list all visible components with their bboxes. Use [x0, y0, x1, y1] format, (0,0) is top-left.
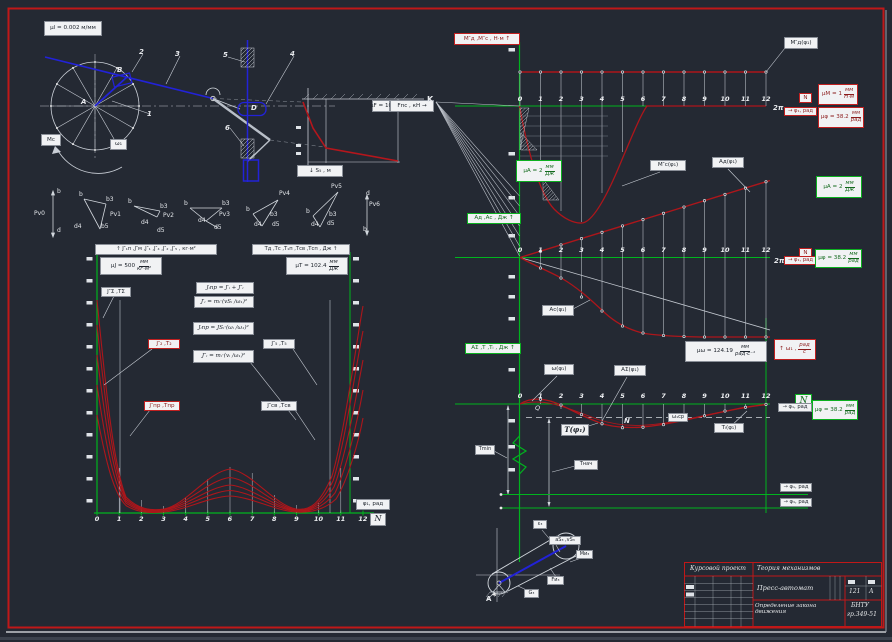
energy-axis-title-right: AΣ ,T ,Tᵢ , Дж ↑: [465, 343, 521, 354]
curve-label-j2: J″₂ ,T₂: [148, 339, 180, 349]
drawing-sheet: μl = 0.002 м/мм 2 3 5 4 1 6 B D А Мс ω₁ …: [0, 0, 892, 642]
mu-phi-bot-den: рад: [845, 411, 855, 417]
ti-curve-label: Tᵢ(φ₁): [714, 423, 744, 433]
mu-omega-den: рад·с⁻¹: [735, 352, 755, 358]
link-number-4: 4: [290, 50, 295, 58]
mu-t-den: Дж: [329, 267, 338, 273]
omega-avg-label: ω₁ср: [668, 413, 688, 422]
tick-label: 2: [556, 392, 566, 400]
omega-axis-box: ↑ ω₁ , радс: [774, 339, 816, 360]
tick-label: 6: [638, 95, 648, 103]
pv5-d5: d5: [327, 221, 335, 227]
moments-two-pi: 2π: [773, 104, 783, 112]
mu-phi-top-value: μφ = 38.2: [821, 114, 849, 120]
tick-label: 9: [291, 515, 301, 523]
mu-phi-mid-den: рад: [848, 259, 858, 265]
tick-label: 6: [638, 392, 648, 400]
tick-label: 10: [720, 392, 730, 400]
force-scale-box: μF = 10: [372, 100, 390, 112]
tick-label: 3: [158, 515, 168, 523]
tick-label: 3: [577, 95, 587, 103]
formula-j-rotational: Jᵢпр = JSᵢ·(ωᵢ /ω₁)²: [193, 322, 254, 335]
scale-length-box: μl = 0.002 м/мм: [44, 21, 102, 36]
point-a-label: А: [81, 98, 86, 106]
point-d-label: D: [251, 104, 257, 112]
mechanism-scheme: [40, 40, 335, 182]
resistance-moment-box: Мс: [41, 134, 61, 146]
tick-label: 3: [577, 246, 587, 254]
left-chart-x-label: φ₁, рад: [356, 499, 390, 510]
omega-chart-ticks: 0123456789101112: [515, 392, 771, 400]
tick-label: 5: [618, 246, 628, 254]
curve-label-jpr: J″пр ,Tпр: [144, 401, 180, 411]
tick-label: 12: [761, 246, 771, 254]
tick-label: 12: [761, 392, 771, 400]
tick-label: 3: [577, 392, 587, 400]
tick-label: 7: [247, 515, 257, 523]
scale-mu-m: μM = 1 ммН·м: [818, 84, 858, 105]
curve-label-jsum: J″Σ ,TΣ: [101, 287, 131, 297]
tick-label: 0: [92, 515, 102, 523]
formula-j-sum: Jᵢпр = J′ᵢ + J″ᵢ: [196, 282, 254, 294]
pv2-d4: d4: [141, 220, 149, 226]
tick-label: 1: [536, 246, 546, 254]
stamp-organization: БНТУ: [851, 603, 869, 610]
t-curve-label: T(φ₁): [561, 424, 589, 436]
tick-label: 9: [700, 95, 710, 103]
left-chart-ticks: 0123456789101112: [92, 515, 368, 523]
sketch-accel-label: aS₃ ,vS₃: [549, 536, 581, 545]
tick-label: 12: [761, 95, 771, 103]
tick-label: 11: [741, 392, 751, 400]
moments-chart-ticks: 0123456789101112: [515, 95, 771, 103]
tick-label: 12: [358, 515, 368, 523]
pv5-b3: b3: [329, 212, 337, 218]
pv3-b3: b3: [222, 201, 230, 207]
mu-m-den: Н·м: [844, 95, 854, 101]
scale-mu-phi-mid: μφ = 38.2 ммрад: [815, 249, 862, 268]
tick-label: 8: [679, 392, 689, 400]
tick-label: 0: [515, 246, 525, 254]
pv0-d: d: [57, 228, 61, 234]
pv5-b: b: [306, 209, 310, 215]
pv1-b5: b5: [101, 224, 109, 230]
sketch-fi-label: Fи₃: [547, 576, 564, 585]
left-chart-n-box: N: [370, 513, 386, 526]
mc-curve-label: М″с(φ₁): [650, 160, 686, 171]
pv2-b: b: [128, 199, 132, 205]
tick-label: 10: [314, 515, 324, 523]
sketch-mi-label: Mи₃: [576, 550, 593, 559]
tick-label: 8: [679, 246, 689, 254]
omega1-box: ω₁: [110, 139, 127, 150]
tick-label: 7: [659, 246, 669, 254]
pv2-d5: d5: [157, 228, 165, 234]
pv1-name: Pv1: [110, 212, 121, 218]
bottom-line2-label: → φ₁, рад: [780, 498, 812, 507]
pv4-b3: b3: [270, 212, 278, 218]
scale-mu-phi-bottom: μφ = 38.2 ммрад: [812, 400, 858, 420]
tick-label: 6: [225, 515, 235, 523]
pv6-b: b: [363, 227, 367, 233]
pv0-b: b: [57, 189, 61, 195]
t-min-label: Tmin: [475, 445, 495, 455]
pv3-name: Pv3: [219, 212, 230, 218]
tick-label: 5: [203, 515, 213, 523]
tick-label: 7: [659, 95, 669, 103]
ac-curve-label: Aс(φ₁): [542, 305, 574, 316]
mu-phi-mid-value: μφ = 38.2: [818, 255, 846, 261]
pv5-d4: d4: [311, 222, 319, 228]
link-number-2: 2: [139, 48, 144, 56]
pv3-d4: d4: [198, 218, 206, 224]
asum-curve-label: AΣ(φ₁): [614, 365, 646, 376]
link-number-1: 1: [147, 110, 152, 118]
works-x-label: → φ₁, рад: [784, 256, 817, 265]
works-axis-title: Aд ,Aс , Дж ↑: [467, 213, 521, 224]
moments-axis-title: М″д ,М″с , Н·м ↑: [454, 33, 520, 45]
stamp-format: А: [869, 589, 874, 596]
link-number-3: 3: [175, 50, 180, 58]
tick-label: 2: [556, 246, 566, 254]
pv3-b: b: [184, 201, 188, 207]
pole-k-label: K: [427, 95, 433, 104]
pv5-name: Pv5: [331, 184, 342, 190]
tick-label: 1: [114, 515, 124, 523]
omega-axis-pre: ↑ ω₁ ,: [779, 346, 796, 352]
tick-label: 4: [597, 95, 607, 103]
curve-label-jsv: J″св ,Tсв: [261, 401, 297, 411]
tick-label: 9: [700, 392, 710, 400]
tick-label: 11: [741, 95, 751, 103]
scale-mu-a-right: μA = 2 ммДж: [816, 176, 862, 198]
pv2-name: Pv2: [163, 213, 174, 219]
pv4-d5: d5: [272, 222, 280, 228]
q-mark: Q: [535, 404, 540, 412]
inertia-axis-title: ↑ J″₁п ,J″м ,J″₁ ,J″₄ ,J″₂ ,J″₅ , кг·м²: [95, 244, 217, 255]
tick-label: 10: [720, 95, 730, 103]
stamp-project-title: Пресс-автомат: [757, 585, 813, 592]
link-number-5: 5: [223, 51, 228, 59]
mu-a-left-den: Дж: [545, 172, 554, 178]
pv1-b: b: [79, 192, 83, 198]
tick-label: 0: [515, 392, 525, 400]
mu-a-right-den: Дж: [845, 188, 854, 194]
tick-label: 2: [136, 515, 146, 523]
stamp-discipline: Теория механизмов: [757, 566, 820, 573]
pv6-d: d: [366, 191, 370, 197]
tick-label: 10: [720, 246, 730, 254]
sketch-eps-label: ε₃: [533, 520, 547, 529]
pv1-b3: b3: [106, 197, 114, 203]
moments-x-label: → φ₁, рад: [784, 107, 817, 116]
tick-label: 6: [638, 246, 648, 254]
tick-label: 8: [269, 515, 279, 523]
energy-axis-title: Tд ,Tс ,T₁п ,Tсв ,Tсп , Дж ↑: [252, 244, 350, 255]
pv4-name: Pv4: [279, 191, 290, 197]
tick-label: 5: [618, 95, 628, 103]
stamp-sheet-number: 121: [849, 589, 860, 596]
pv4-b: b: [246, 207, 250, 213]
tick-label: 4: [181, 515, 191, 523]
formula-j-translational: J′ᵢ = mᵢ·(vSᵢ /ω₁)²: [194, 296, 254, 308]
sheet-frame: [0, 9, 892, 641]
scale-mu-j: μJ = 500 ммкг·м²: [100, 257, 162, 275]
tick-label: 5: [618, 392, 628, 400]
tick-label: 0: [515, 95, 525, 103]
tick-label: 4: [597, 392, 607, 400]
tick-label: 1: [536, 392, 546, 400]
tick-label: 11: [336, 515, 346, 523]
velocity-polygons: [52, 191, 369, 237]
bottom-line1-label: → φ₁, рад: [780, 483, 812, 492]
mu-a-left-value: μA = 2: [523, 168, 542, 174]
omega-curve-label: ω(φ₁): [544, 364, 574, 375]
stamp-group: гр.349-51: [847, 612, 877, 619]
sketch-point-a: А: [486, 595, 491, 603]
pv3-d5: d5: [214, 225, 222, 231]
md-curve-label: М″д(φ₁): [784, 37, 818, 49]
moments-n-box: N: [799, 93, 812, 103]
omega-axis-den: с: [803, 350, 806, 356]
pv6-name: Pv6: [369, 202, 380, 208]
dynamics-charts: [436, 42, 808, 562]
scale-mu-omega: μω = 124.19 ммрад·с⁻¹: [685, 341, 767, 362]
formula-j-slider: J″ᵢ = mᵢ·(vᵢ /ω₁)²: [193, 350, 254, 363]
curve-label-j5: J″₅ ,T₅: [263, 339, 295, 349]
pv0-name: Pv0: [34, 211, 45, 217]
scale-mu-a-left: μA = 2 ммДж: [516, 160, 562, 182]
ad-curve-label: Aд(φ₁): [712, 157, 744, 168]
mu-m-value: μM = 1: [822, 91, 842, 97]
tick-label: 9: [700, 246, 710, 254]
tick-label: 4: [597, 246, 607, 254]
mu-j-den: кг·м²: [137, 267, 151, 273]
pv4-d4: d4: [254, 222, 262, 228]
scale-mu-phi-top: μφ = 38.2 ммрад: [818, 107, 864, 128]
mu-j-value: μJ = 500: [111, 263, 135, 269]
moments-chart: [436, 48, 785, 256]
mu-a-right-value: μA = 2: [823, 184, 842, 190]
scale-mu-t: μT = 102.4 ммДж: [286, 257, 348, 275]
point-b-label: B: [117, 66, 122, 74]
stamp-subtitle: Определение закона движения: [755, 603, 841, 615]
tick-label: 7: [659, 392, 669, 400]
tick-label: 2: [556, 95, 566, 103]
link-number-6: 6: [225, 124, 230, 132]
mu-phi-top-den: рад: [851, 118, 861, 124]
tick-label: 11: [741, 246, 751, 254]
mu-t-value: μT = 102.4: [295, 263, 326, 269]
stroke-axis-box: ↓ S₅ , м: [297, 165, 343, 177]
sketch-g-label: G₃: [524, 589, 539, 598]
stamp-doc-type: Курсовой проект: [690, 566, 746, 573]
tick-label: 1: [536, 95, 546, 103]
omega-chart-x-label: → φ₁, рад: [778, 403, 812, 412]
pv2-b3: b3: [160, 204, 168, 210]
works-chart-ticks: 0123456789101112: [515, 246, 771, 254]
t-nach-label: Tнач: [574, 460, 598, 470]
mu-phi-bot-value: μφ = 38.2: [815, 407, 843, 413]
tick-label: 8: [679, 95, 689, 103]
n-mark: N: [624, 417, 630, 425]
pv1-d4: d4: [74, 224, 82, 230]
mu-omega-value: μω = 124.19: [697, 348, 733, 354]
works-two-pi: 2π: [774, 257, 784, 265]
